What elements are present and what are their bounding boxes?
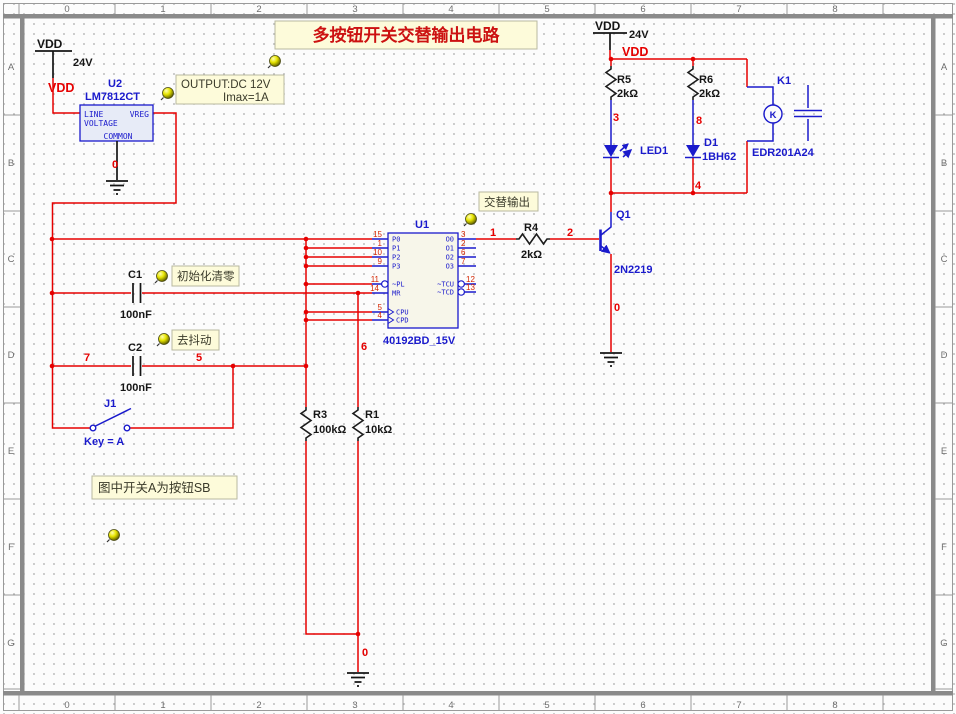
u1-pin-number: 2 [461, 239, 466, 248]
net-label-3[interactable]: 3 [613, 112, 619, 124]
junction-dot [609, 191, 614, 196]
u1-pin-number: 14 [370, 284, 379, 293]
junction-dot [50, 364, 55, 369]
net-label-0-u2[interactable]: 0 [112, 159, 118, 171]
schematic-workspace: 0 1 2 3 4 5 6 7 8 0 1 2 3 4 5 6 7 8 A B … [0, 0, 956, 714]
k1-refdes[interactable]: K1 [777, 75, 791, 87]
u1-pin-number: 13 [466, 283, 475, 292]
vdd-label-right[interactable]: VDD [595, 19, 621, 33]
j1-key-label[interactable]: Key = A [84, 436, 124, 448]
ruler-row-label: E [8, 446, 14, 457]
ruler-row-label: A [8, 62, 15, 73]
u1-pin-number: 1 [378, 239, 383, 248]
r5-refdes[interactable]: R5 [617, 74, 631, 86]
ruler-col-label: 1 [160, 700, 165, 711]
junction-dot [356, 632, 361, 637]
j1-refdes[interactable]: J1 [104, 398, 116, 410]
u1-tcd-inversion-bubble [458, 289, 464, 295]
c1-value[interactable]: 100nF [120, 309, 152, 321]
net-label-6[interactable]: 6 [361, 341, 367, 353]
net-label-0-bottom[interactable]: 0 [362, 647, 368, 659]
ruler-col-label: 4 [448, 4, 453, 15]
ruler-row-label: F [941, 542, 947, 553]
u1-pin-number: 7 [461, 257, 466, 266]
ruler-bar-bottom [3, 691, 953, 696]
vdd-label-left[interactable]: VDD [37, 37, 63, 51]
ruler-bar-top [3, 14, 953, 19]
k1-part-number[interactable]: EDR201A24 [752, 147, 815, 159]
junction-dot [50, 291, 55, 296]
u1-pin-name: ~PL [392, 281, 405, 289]
ruler-col-label: 2 [256, 4, 261, 15]
ruler-col-label: 2 [256, 700, 261, 711]
ruler-col-label: 7 [736, 700, 741, 711]
r1-value[interactable]: 10kΩ [365, 424, 392, 436]
init-note-text: 初始化清零 [177, 269, 235, 283]
ruler-row-label: B [941, 158, 947, 169]
u2-pin-vreg: VREG [130, 110, 149, 119]
ruler-col-label: 3 [352, 700, 357, 711]
u1-pin-number: 10 [373, 248, 382, 257]
u2-pin-line: LINE [84, 110, 103, 119]
u1-pl-inversion-bubble [382, 281, 388, 287]
debounce-note-text: 去抖动 [177, 333, 212, 347]
u1-pin-name: ~TCD [437, 289, 454, 297]
ruler-bar-right [931, 14, 936, 695]
output-note-line2: Imax=1A [223, 92, 269, 104]
ruler-row-label: E [941, 446, 947, 457]
r1-refdes[interactable]: R1 [365, 409, 379, 421]
u1-pin-number: 15 [373, 230, 382, 239]
junction-dot [304, 282, 309, 287]
u1-pin-name: CPD [396, 317, 409, 325]
u1-pin-number: 11 [371, 275, 380, 284]
r6-value[interactable]: 2kΩ [699, 88, 720, 100]
ruler-row-label: B [8, 158, 14, 169]
u2-part-number[interactable]: LM7812CT [85, 91, 140, 103]
led1-refdes[interactable]: LED1 [640, 145, 668, 157]
ruler-row-label: F [8, 542, 14, 553]
junction-dot [356, 291, 361, 296]
d1-refdes[interactable]: D1 [704, 137, 718, 149]
r3-value[interactable]: 100kΩ [313, 424, 346, 436]
u1-pin-number: 6 [461, 248, 466, 257]
u1-pin-name: CPU [396, 309, 409, 317]
u1-pin-name: MR [392, 290, 401, 298]
junction-dot [304, 364, 309, 369]
junction-dot [304, 237, 309, 242]
ruler-col-label: 5 [544, 4, 549, 15]
ruler-row-label: D [941, 350, 948, 361]
junction-dot [304, 255, 309, 260]
u1-pin-name: P3 [392, 263, 400, 271]
switch-note-text: 图中开关A为按钮SB [98, 480, 211, 495]
c1-refdes[interactable]: C1 [128, 269, 142, 281]
r3-refdes[interactable]: R3 [313, 409, 327, 421]
output-note-line1: OUTPUT:DC 12V [181, 79, 271, 91]
u1-tcu-inversion-bubble [458, 281, 464, 287]
schematic-title[interactable]: 多按钮开关交替输出电路 [313, 25, 501, 45]
r4-value[interactable]: 2kΩ [521, 249, 542, 261]
schematic-canvas[interactable]: 0 1 2 3 4 5 6 7 8 0 1 2 3 4 5 6 7 8 A B … [0, 0, 956, 714]
r6-refdes[interactable]: R6 [699, 74, 713, 86]
alt-output-note-text: 交替输出 [484, 195, 530, 209]
net-label-vdd-right[interactable]: VDD [622, 45, 648, 59]
c2-value[interactable]: 100nF [120, 382, 152, 394]
junction-dot [231, 364, 236, 369]
u1-pin-name: P0 [392, 236, 400, 244]
ruler-row-label: G [940, 638, 947, 649]
u1-pin-name: O3 [446, 263, 454, 271]
q1-part-number[interactable]: 2N2219 [614, 264, 653, 276]
ruler-col-label: 6 [640, 4, 645, 15]
u1-pin-name: P1 [392, 245, 400, 253]
u1-refdes[interactable]: U1 [415, 219, 429, 231]
ruler-bar-left [20, 14, 25, 695]
net-label-4[interactable]: 4 [695, 180, 702, 192]
ruler-col-label: 1 [160, 4, 165, 15]
net-label-5[interactable]: 5 [196, 352, 202, 364]
k1-coil-letter: K [770, 110, 777, 121]
q1-refdes[interactable]: Q1 [616, 209, 631, 221]
junction-dot [691, 57, 696, 62]
r5-value[interactable]: 2kΩ [617, 88, 638, 100]
net-label-2[interactable]: 2 [567, 227, 573, 239]
ruler-col-label: 3 [352, 4, 357, 15]
u1-part-number[interactable]: 40192BD_15V [383, 335, 456, 347]
c2-refdes[interactable]: C2 [128, 342, 142, 354]
junction-dot [304, 246, 309, 251]
ruler-col-label: 5 [544, 700, 549, 711]
net-label-1[interactable]: 1 [490, 227, 496, 239]
u1-pin-name: O2 [446, 254, 454, 262]
ruler-row-label: G [7, 638, 14, 649]
junction-dot [50, 237, 55, 242]
vdd-voltage-right[interactable]: 24V [629, 29, 649, 41]
ruler-col-label: 8 [832, 4, 837, 15]
j1-terminal-left[interactable] [90, 425, 96, 431]
ruler-col-label: 7 [736, 4, 741, 15]
net-label-vdd-left[interactable]: VDD [48, 81, 74, 95]
junction-dot [304, 310, 309, 315]
d1-part-number[interactable]: 1BH62 [702, 151, 736, 163]
ruler-col-label: 6 [640, 700, 645, 711]
ruler-row-label: A [941, 62, 948, 73]
u1-pin-number: 3 [461, 230, 466, 239]
u1-pin-name: O0 [446, 236, 454, 244]
ruler-col-label: 0 [64, 700, 69, 711]
ruler-row-label: D [8, 350, 15, 361]
junction-dot [609, 57, 614, 62]
vdd-voltage-left[interactable]: 24V [73, 57, 93, 69]
ruler-col-label: 0 [64, 4, 69, 15]
u2-refdes[interactable]: U2 [108, 78, 122, 90]
u1-pin-number: 9 [378, 257, 383, 266]
j1-terminal-right[interactable] [124, 425, 130, 431]
u1-pin-name: O1 [446, 245, 454, 253]
net-label-0-q1[interactable]: 0 [614, 302, 620, 314]
u1-pin-name: ~TCU [437, 281, 454, 289]
junction-dot [304, 318, 309, 323]
junction-dot [304, 264, 309, 269]
ruler-col-label: 4 [448, 700, 453, 711]
net-label-8[interactable]: 8 [696, 115, 702, 127]
r4-refdes[interactable]: R4 [524, 222, 539, 234]
net-label-7[interactable]: 7 [84, 352, 90, 364]
ruler-col-label: 8 [832, 700, 837, 711]
u1-pin-name: P2 [392, 254, 400, 262]
u1-pin-number: 4 [378, 311, 383, 320]
u2-pin-voltage: VOLTAGE [84, 119, 118, 128]
ruler-row-label: C [8, 254, 15, 265]
u2-pin-common: COMMON [104, 132, 133, 141]
ruler-row-label: C [941, 254, 948, 265]
